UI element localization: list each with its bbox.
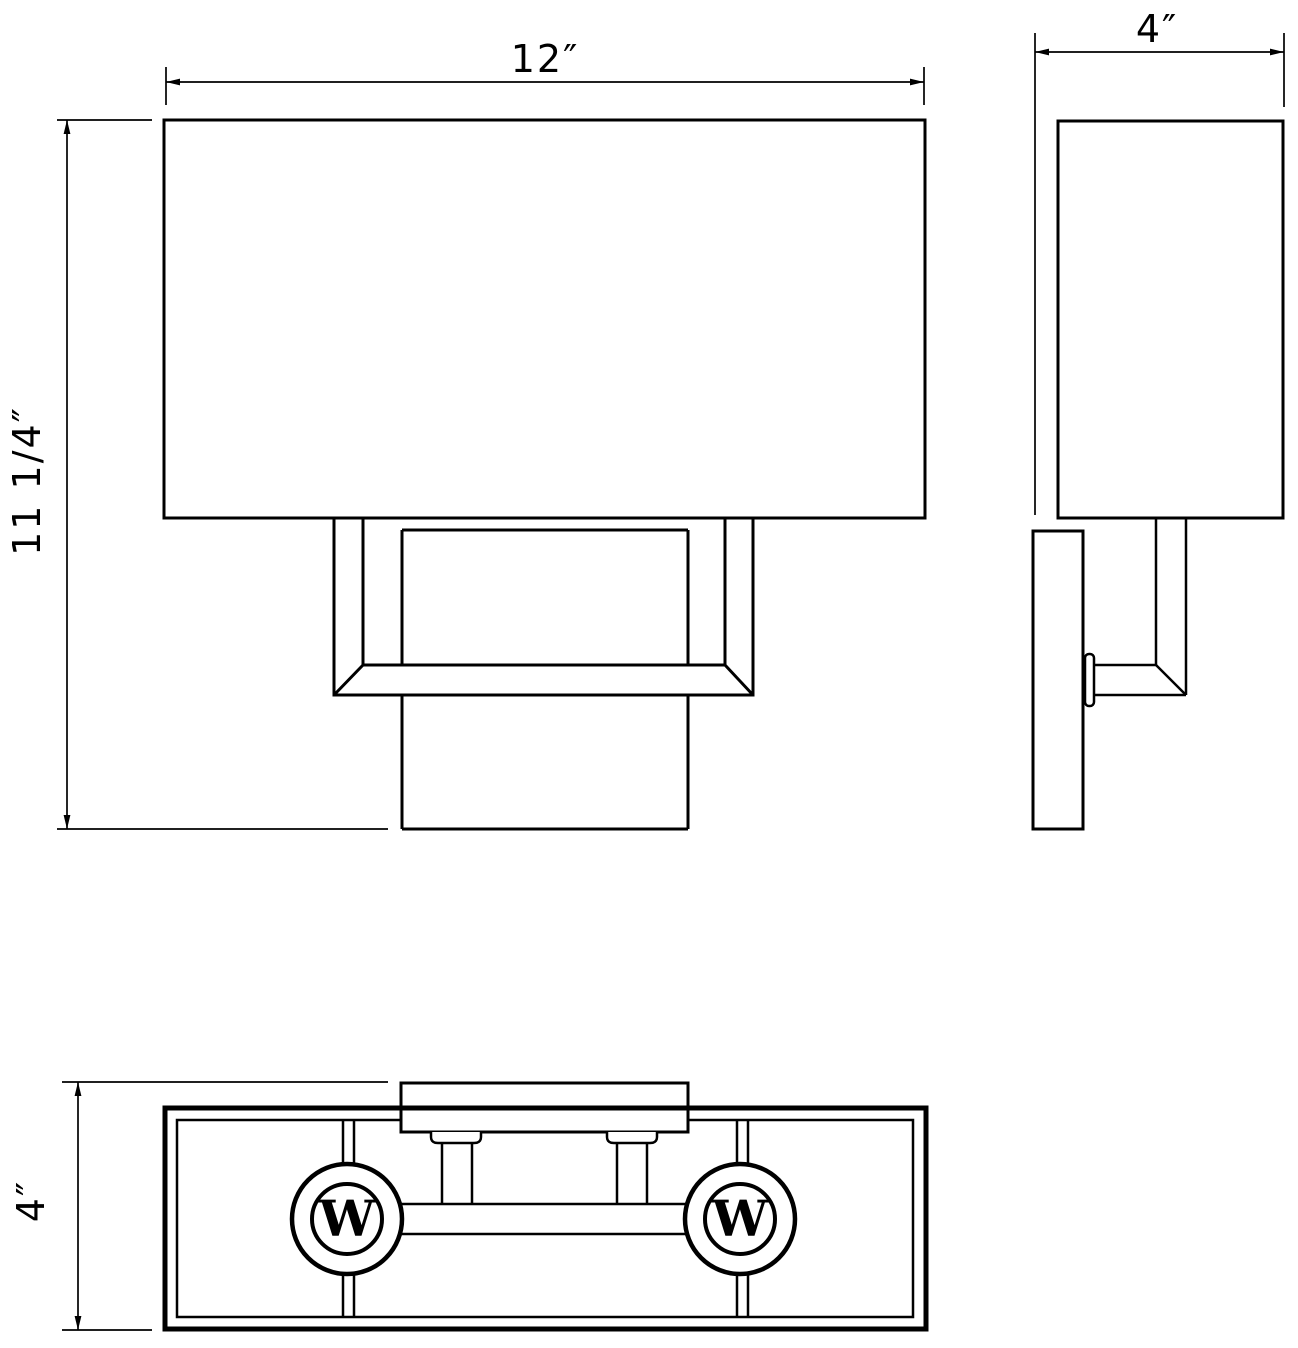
sconce-dimension-drawing: 12″ 11 1/4″	[0, 0, 1298, 1348]
socket-stem-left	[431, 1132, 481, 1204]
shade-front-outline	[164, 120, 925, 518]
dimension-label-front-height: 11 1/4″	[5, 406, 49, 556]
shade-bottom-inner-outline	[177, 1120, 913, 1317]
front-view: 12″ 11 1/4″	[5, 37, 925, 829]
arrowhead-bottom	[64, 815, 71, 829]
arm-bevel-left	[334, 665, 363, 695]
bottom-view: 4″	[9, 1082, 926, 1330]
arrowhead-right	[1270, 49, 1284, 56]
lamp-socket-symbol-left: W	[292, 1164, 402, 1274]
arrowhead-left	[166, 79, 180, 86]
dimension-label-side-depth: 4″	[1136, 7, 1178, 51]
drawing-sheet: 12″ 11 1/4″	[0, 0, 1298, 1348]
arm-bevel-edge	[1156, 665, 1186, 695]
mounting-knob	[1085, 654, 1094, 706]
socket-crossbar	[400, 1204, 688, 1234]
arm-inner-outline	[363, 518, 725, 665]
socket-letter: W	[318, 1189, 376, 1248]
stem-flange	[607, 1132, 657, 1143]
arm-outer-outline	[334, 518, 753, 695]
dimension-label-bottom-depth: 4″	[9, 1180, 53, 1222]
side-view: 4″	[1033, 7, 1284, 829]
arrowhead-right	[910, 79, 924, 86]
socket-stem-right	[607, 1132, 657, 1204]
shade-bottom-outer-outline	[165, 1108, 926, 1329]
arrowhead-bottom	[75, 1316, 82, 1330]
dimension-side-depth: 4″	[1035, 7, 1284, 515]
arm-frame-front	[334, 518, 753, 695]
dimension-front-height: 11 1/4″	[5, 120, 388, 829]
arm-side	[1093, 518, 1186, 695]
arm-bevel-right	[725, 665, 753, 695]
socket-letter: W	[711, 1189, 769, 1248]
shade-side-outline	[1058, 121, 1283, 518]
dimension-front-width: 12″	[166, 37, 924, 105]
stem-flange	[431, 1132, 481, 1143]
arrowhead-top	[64, 120, 71, 134]
backplate-side-outline	[1033, 531, 1083, 829]
lamp-socket-symbol-right: W	[685, 1164, 795, 1274]
backplate-front	[402, 530, 688, 829]
arrowhead-left	[1035, 49, 1049, 56]
arrowhead-top	[75, 1082, 82, 1096]
dimension-label-front-width: 12″	[511, 37, 580, 81]
